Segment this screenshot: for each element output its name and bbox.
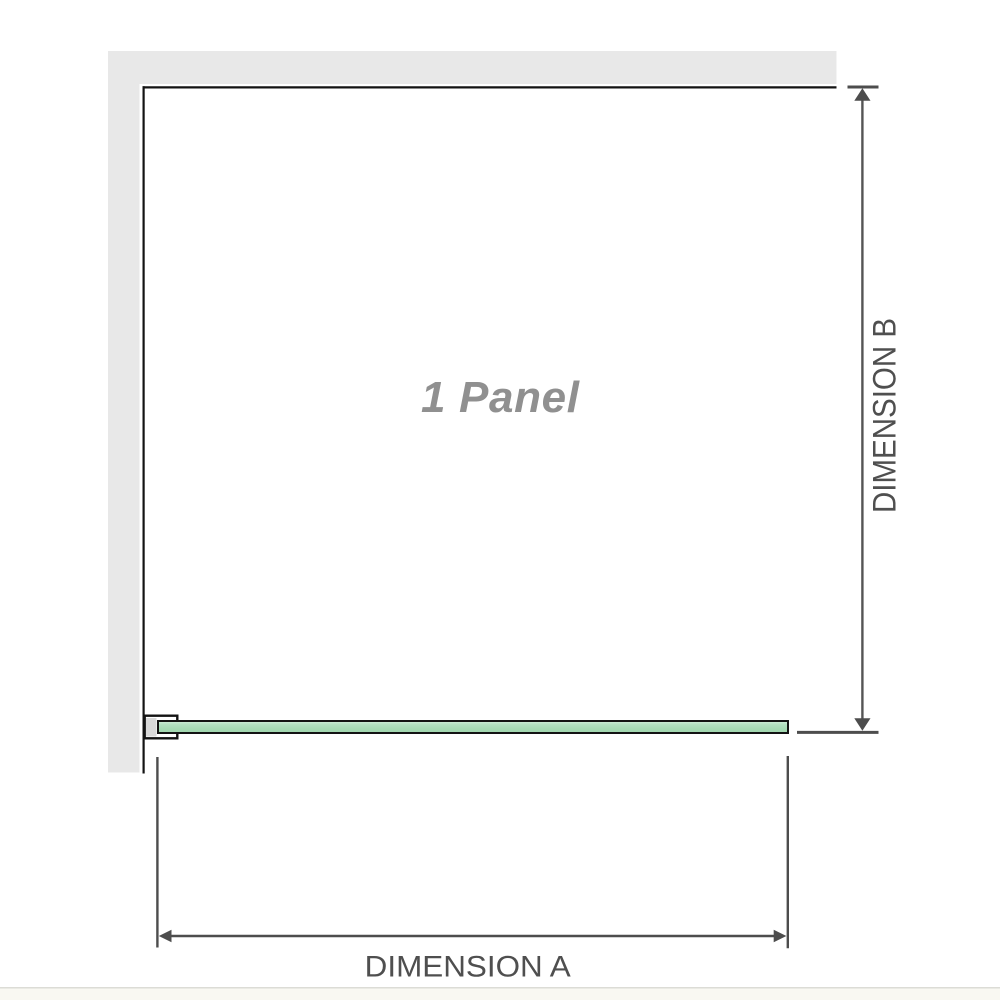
svg-text:DIMENSION B: DIMENSION B [867, 318, 903, 513]
svg-text:1 Panel: 1 Panel [421, 373, 580, 422]
svg-text:DIMENSION A: DIMENSION A [365, 950, 571, 983]
